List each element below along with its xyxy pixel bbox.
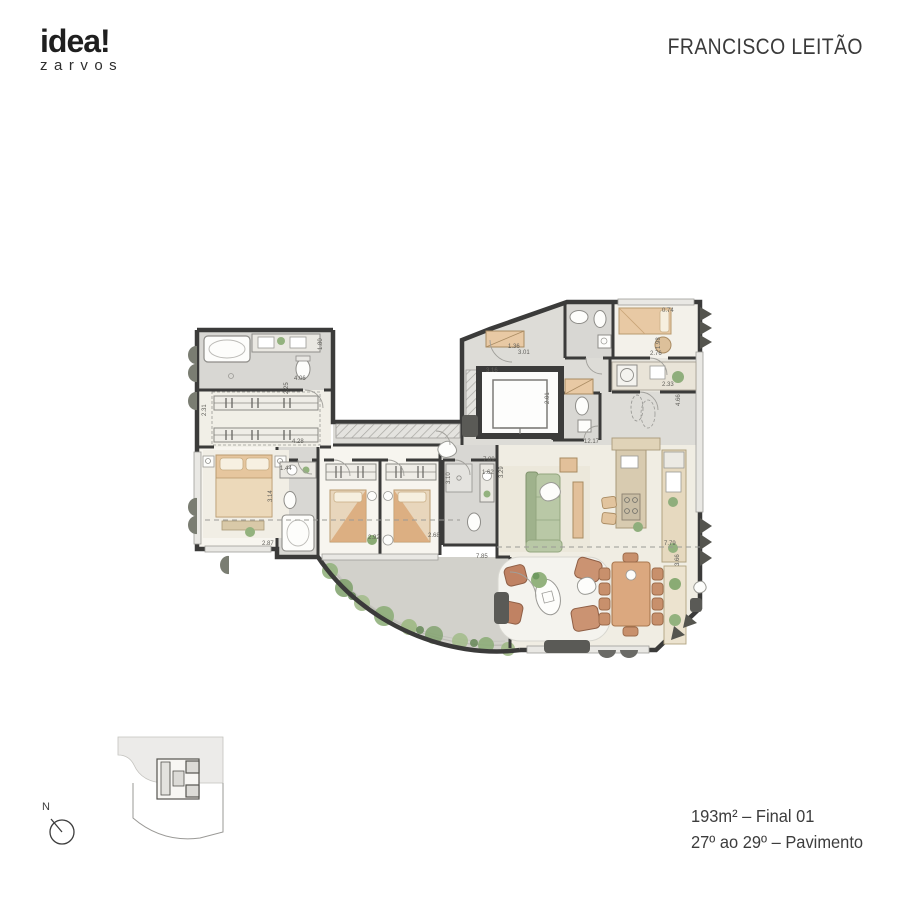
- dim-label: 1.62: [482, 470, 494, 476]
- living-room: [500, 458, 590, 552]
- dim-label: 1.44: [280, 466, 292, 472]
- dim-label: 7.89: [483, 457, 495, 463]
- dim-label: 3.14: [268, 490, 274, 502]
- sink-icon: [578, 420, 591, 432]
- clothes-rack-icon: [214, 396, 318, 410]
- dim-label: 2.87: [262, 541, 274, 547]
- laundry-sink-icon: [650, 366, 665, 379]
- keyplan-unit: [157, 759, 199, 799]
- dim-label: 2.76: [650, 351, 662, 357]
- cooktop-icon: [622, 494, 640, 520]
- dim-label: 1.80: [318, 338, 324, 350]
- unit-floor-line: 27º ao 29º – Pavimento: [691, 829, 863, 855]
- dim-label: 4.28: [292, 439, 304, 445]
- dim-label: 2.25: [284, 382, 290, 394]
- toilet-icon: [468, 513, 481, 531]
- dim-label: 3.29: [499, 466, 505, 478]
- dim-label: 2.33: [662, 382, 674, 388]
- dim-label: 3.01: [518, 350, 530, 356]
- master-bedroom: [203, 450, 289, 538]
- key-plan: [110, 732, 235, 850]
- dim-label: 3.16: [486, 368, 498, 374]
- sink-icon: [598, 335, 611, 348]
- dim-label: 7.85: [476, 554, 488, 560]
- dim-label: 2.92: [368, 535, 380, 541]
- wardrobe-icon: [326, 464, 376, 480]
- side-table-icon: [560, 458, 577, 472]
- toilet-icon: [284, 492, 296, 509]
- dim-label: 4.06: [294, 376, 306, 382]
- toilet-icon: [576, 397, 589, 415]
- washbasin-icon: [570, 311, 588, 324]
- sideboard-icon: [573, 482, 583, 538]
- stool-icon: [601, 512, 616, 524]
- laundry: [612, 362, 696, 390]
- brochure-page: idea! zarvos FRANCISCO LEITÃO: [0, 0, 901, 901]
- dim-label: 2.31: [202, 404, 208, 416]
- wardrobe-icon: [386, 464, 436, 480]
- dim-label: 3.10: [446, 472, 452, 484]
- nightstand-icon: [203, 456, 214, 467]
- armchair-icon: [570, 605, 601, 632]
- dim-label: 12.17: [584, 439, 600, 445]
- dim-label: 2.68: [428, 533, 440, 539]
- unit-area-line: 193m² – Final 01: [691, 803, 863, 829]
- sitting-area: [498, 556, 610, 641]
- dim-label: 1.36: [508, 344, 520, 350]
- north-compass: N: [34, 796, 104, 856]
- stool-icon: [601, 496, 616, 509]
- toilet-icon: [594, 311, 606, 328]
- dim-label: 7.79: [664, 541, 676, 547]
- dim-label: 2.01: [545, 392, 551, 404]
- dim-label: 3.66: [675, 554, 681, 566]
- north-label: N: [42, 801, 50, 813]
- unit-info: 193m² – Final 01 27º ao 29º – Pavimento: [691, 803, 863, 856]
- bench-icon: [222, 521, 264, 530]
- dim-label: 1.98: [656, 337, 662, 349]
- closet-icon: [565, 379, 593, 394]
- dim-label: 4.66: [676, 394, 682, 406]
- dim-label: 0.74: [662, 308, 674, 314]
